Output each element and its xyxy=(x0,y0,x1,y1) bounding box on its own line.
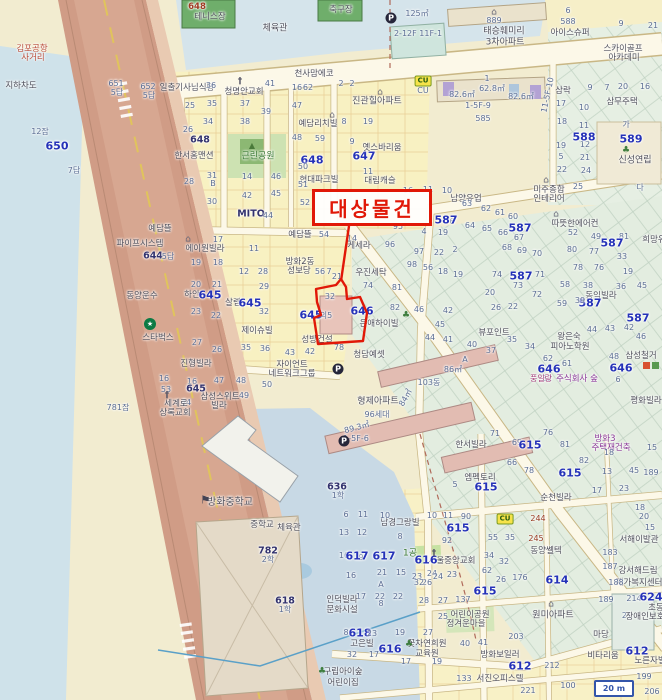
map-label: 18 xyxy=(604,449,614,457)
scale-bar: 20 m xyxy=(594,680,634,697)
map-label: 76 xyxy=(594,264,604,272)
map-label: 617 xyxy=(373,551,396,562)
map-label: 12 xyxy=(239,268,249,276)
map-label: 137 xyxy=(455,596,470,604)
map-label: 16 xyxy=(292,84,302,92)
map-label: 84㎡ xyxy=(398,388,414,408)
map-label: 7답 xyxy=(68,167,80,175)
map-label: 에이원빌라 xyxy=(185,245,224,254)
map-label: 27 xyxy=(423,629,433,637)
map-label: 72 xyxy=(532,291,542,299)
map-label: 587 xyxy=(601,238,624,249)
map-label: MITO xyxy=(237,209,265,219)
map-label: 원미아파트 xyxy=(532,612,573,621)
map-label: 48 xyxy=(236,377,246,385)
map-label: 15 xyxy=(396,569,406,577)
map-label: 82 xyxy=(390,304,400,312)
map-label: 한서홈맨션 xyxy=(174,152,213,161)
map-label: 5 xyxy=(558,153,563,161)
map-label: 52 xyxy=(568,229,578,237)
map-label: 46 xyxy=(271,173,281,181)
bldg-icon: ⌂ xyxy=(329,112,335,121)
map-label: 11 xyxy=(443,512,453,520)
map-label: 62 xyxy=(481,205,491,213)
map-label: 92 xyxy=(442,537,452,545)
map-label: 58 xyxy=(560,281,570,289)
map-label: 27 xyxy=(438,597,448,605)
map-label: 대림캐슬 xyxy=(364,177,395,186)
map-label: 상록교회 xyxy=(159,409,190,418)
map-label: 네트워크그룹 xyxy=(269,370,316,379)
map-label: 56 xyxy=(423,264,433,272)
map-label: 64 xyxy=(465,222,475,230)
map-label: 21 xyxy=(648,22,658,30)
map-label: 8 xyxy=(343,629,348,637)
target-annotation-box: 대상물건 xyxy=(312,189,432,226)
map-label: 12잡 xyxy=(31,128,49,136)
p-icon: P xyxy=(339,436,350,447)
map-label: 77 xyxy=(589,248,599,256)
map-label: 74 xyxy=(492,271,502,279)
map-label: 28 xyxy=(184,178,194,186)
map-label: 615 xyxy=(474,586,497,597)
map-label: B xyxy=(210,180,216,188)
map-label: 뷰포인트 xyxy=(478,329,509,338)
map-label: 10 xyxy=(427,512,437,520)
map-label: 13 xyxy=(602,468,612,476)
map-label: 70 xyxy=(532,250,542,258)
map-label: 38 xyxy=(240,118,250,126)
map-label: 25 xyxy=(573,183,583,191)
map-label: 48 xyxy=(292,134,302,142)
map-label: 189 xyxy=(598,596,613,604)
map-label: 644 xyxy=(143,251,163,261)
map-label: 61 xyxy=(562,360,572,368)
map-label: 32 xyxy=(325,293,335,301)
map-label: 강서해드림 xyxy=(618,567,657,576)
map-label: 10 xyxy=(380,512,390,520)
map-label: 21 xyxy=(580,154,590,162)
map-label: 가 xyxy=(622,121,629,129)
map-label: 42 xyxy=(624,324,634,332)
map-label: 21 xyxy=(332,273,342,281)
map-label: 587 xyxy=(510,271,533,282)
map-label: 희망유 xyxy=(642,236,662,245)
map-label: 38 xyxy=(583,282,593,290)
map-label: 남경그랑빌 xyxy=(380,519,419,528)
map-label: 스타벅스 xyxy=(142,334,173,343)
map-label: 5답 xyxy=(143,92,155,100)
map-label: 40 xyxy=(467,341,477,349)
map-label: 781잡 xyxy=(107,404,130,412)
map-label: A xyxy=(462,356,467,364)
church-icon: † xyxy=(432,550,437,559)
map-label: 5 xyxy=(452,481,457,489)
map-label: 어린이집 xyxy=(327,679,358,688)
map-label: 54 xyxy=(319,231,329,239)
map-label: A xyxy=(378,581,383,589)
map-label: 꽃차연희원 xyxy=(407,640,446,649)
cu-icon: CU xyxy=(497,514,514,525)
map-label: 12 xyxy=(357,529,367,537)
map-label: 서해이발관 xyxy=(619,536,658,545)
map-label: 4 xyxy=(421,228,426,236)
map-label: 26 xyxy=(212,346,222,354)
map-label: 23 xyxy=(191,308,201,316)
map-label: 15 xyxy=(645,524,655,532)
map-label: 17 xyxy=(369,651,379,659)
map-label: 우진세탁 xyxy=(355,269,386,278)
map-label: 245 xyxy=(528,535,543,543)
map-label: 40 xyxy=(460,640,470,648)
map-label: 76 xyxy=(543,429,553,437)
map-label: 9 xyxy=(349,138,354,146)
map-label: 650 xyxy=(46,141,69,152)
map-label: 37 xyxy=(240,100,250,108)
map-label: 648 xyxy=(188,3,206,12)
map-label: 동양쎌텍 xyxy=(530,547,561,556)
map-label: 중학교 xyxy=(250,521,273,530)
map-label: 29 xyxy=(259,283,269,291)
map-label: 6 xyxy=(565,7,570,15)
map-label: 3차아파트 xyxy=(486,39,525,48)
map-label: 다 xyxy=(636,184,643,192)
map-label: 5답 xyxy=(162,253,174,261)
map-label: 86㎡ xyxy=(444,366,462,374)
map-label: 615 xyxy=(519,440,542,451)
map-label: 32 xyxy=(259,308,269,316)
map-label: 62 xyxy=(482,567,492,575)
church-icon: † xyxy=(165,392,170,401)
map-label: 45 xyxy=(629,467,639,475)
map-label: 17 xyxy=(401,658,411,666)
map-label: 36 xyxy=(260,345,270,353)
map-label: 5답 xyxy=(111,89,123,97)
map-label: 26 xyxy=(496,576,506,584)
map-label: 사거리 xyxy=(21,54,44,63)
map-label: 585 xyxy=(475,115,490,123)
map-label: 48 xyxy=(609,353,619,361)
map-label: 183 xyxy=(602,549,617,557)
map-label: 7 xyxy=(326,268,331,276)
tree-icon: ♣ xyxy=(405,641,413,650)
bldg-icon: ⌂ xyxy=(185,236,191,245)
map-label: 52 xyxy=(300,199,310,207)
map-label: 2 xyxy=(452,246,457,254)
map-label: 612 xyxy=(509,661,532,672)
map-label: 6 xyxy=(615,376,620,384)
map-label: 17 xyxy=(592,487,602,495)
map-label: 614 xyxy=(546,575,569,586)
map-label: 71 xyxy=(535,271,545,279)
map-label: 9 xyxy=(587,84,592,92)
map-label: 615 xyxy=(447,523,470,534)
cadastral-map: 체육관648테니스장축구장125㎡2-12F 11F-1889태승훼미리3차아파… xyxy=(0,0,662,700)
map-label: 19 xyxy=(432,658,442,666)
peak-icon: ▲ xyxy=(249,142,255,150)
p-icon: P xyxy=(386,13,397,24)
map-label: 45 xyxy=(435,321,445,329)
map-label: 22 xyxy=(211,312,221,320)
map-label: 왕은숙 xyxy=(557,333,580,342)
map-label: 18 xyxy=(557,118,567,126)
school-icon: ⚑ xyxy=(200,495,210,506)
map-label: 44 xyxy=(263,212,273,220)
map-label: 90 xyxy=(461,513,471,521)
map-label: 방화중학교 xyxy=(207,498,253,508)
map-label: 206 xyxy=(644,688,659,696)
map-label: 11 xyxy=(358,511,368,519)
map-label: 한서빌라 xyxy=(455,441,486,450)
map-label: 순천빌라 xyxy=(540,494,571,503)
map-label: 78 xyxy=(334,344,344,352)
map-label: 축구장 xyxy=(329,6,352,15)
map-label: CU xyxy=(417,87,428,95)
map-label: 11-5F-10 xyxy=(540,77,555,114)
map-label: 19 xyxy=(623,268,633,276)
map-label: 22 xyxy=(508,303,518,311)
map-label: 13 xyxy=(339,529,349,537)
map-label: 문화시설 xyxy=(326,606,357,615)
map-label: 19 xyxy=(556,142,566,150)
map-label: 17 xyxy=(213,236,223,244)
church-icon: † xyxy=(238,78,243,87)
map-label: 근린공원 xyxy=(241,153,274,162)
map-label: 방화보일러 xyxy=(480,651,519,660)
map-label: 39 xyxy=(261,108,271,116)
map-label: 34 xyxy=(203,118,213,126)
map-label: 30 xyxy=(207,198,217,206)
map-label: 24 xyxy=(433,573,443,581)
map-label: 188 xyxy=(608,579,623,587)
map-label: 천사맘에코 xyxy=(294,70,333,79)
map-label: 43 xyxy=(605,325,615,333)
map-label: 27 xyxy=(192,339,202,347)
map-label: 43 xyxy=(285,349,295,357)
map-label: 인덕빌라 xyxy=(326,596,357,605)
map-label: 81 xyxy=(560,441,570,449)
map-label: 45 xyxy=(637,282,647,290)
map-label: 41 xyxy=(265,80,275,88)
map-label: 마당 xyxy=(593,631,609,640)
map-label: 아이스슈퍼 xyxy=(550,29,589,38)
map-label: 78 xyxy=(524,467,534,475)
map-label: 81 xyxy=(392,284,402,292)
map-label: 42 xyxy=(443,307,453,315)
map-label: 78 xyxy=(573,264,583,272)
map-label: 67 xyxy=(514,234,524,242)
map-label: 서진오피스텔 xyxy=(477,675,524,684)
map-label: 617 xyxy=(346,551,369,562)
map-label: 예담뜰 xyxy=(288,231,311,240)
map-label: 1 xyxy=(484,75,489,83)
map-label: 22 xyxy=(434,249,444,257)
map-label: 125㎡ xyxy=(405,10,428,18)
cu-icon: CU xyxy=(415,76,432,87)
map-label: 45 xyxy=(271,190,281,198)
map-label: 파이프시스템 xyxy=(117,240,164,249)
map-label: 2-12F 11F-1 xyxy=(394,30,442,38)
target-annotation-label: 대상물건 xyxy=(329,193,415,222)
map-label: 정겨운마을 xyxy=(446,620,485,629)
map-label: 646 xyxy=(351,306,374,317)
map-label: 성보당 xyxy=(287,267,310,276)
map-label: 97 xyxy=(414,248,424,256)
map-label: 32 xyxy=(414,579,424,587)
bldg-icon: ⌂ xyxy=(548,601,554,610)
map-label: 46 xyxy=(636,333,646,341)
map-labels-layer: 체육관648테니스장축구장125㎡2-12F 11F-1889태승훼미리3차아파… xyxy=(0,0,662,700)
map-label: 동양운수 xyxy=(126,292,157,301)
map-label: 삼성철거 xyxy=(625,352,656,361)
map-label: 59 xyxy=(557,300,567,308)
map-label: 34 xyxy=(484,552,494,560)
map-label: 삼무주택 xyxy=(606,98,637,107)
map-label: 2학 xyxy=(262,556,274,564)
bldg-icon: ⌂ xyxy=(553,211,559,220)
map-label: 189 xyxy=(643,469,658,477)
map-label: 34 xyxy=(525,343,535,351)
map-label: 18 xyxy=(213,259,223,267)
map-label: 36 xyxy=(206,82,216,90)
map-label: 23 xyxy=(619,485,629,493)
map-label: 25 xyxy=(438,613,448,621)
map-label: 16 xyxy=(640,83,650,91)
map-label: 100 xyxy=(560,682,575,690)
map-label: 6 xyxy=(343,511,348,519)
map-label: 646 xyxy=(610,363,633,374)
map-label: 테니스장 xyxy=(194,13,225,22)
map-label: 587 xyxy=(435,215,458,226)
map-label: 20 xyxy=(618,83,628,91)
map-label: 22 xyxy=(393,593,403,601)
map-label: 68 xyxy=(502,244,512,252)
bldg-icon: ⌂ xyxy=(491,9,497,18)
map-label: 37 xyxy=(486,347,496,355)
map-label: 98 xyxy=(407,261,417,269)
map-label: 652 xyxy=(140,83,155,91)
map-label: 20 xyxy=(639,513,649,521)
map-label: 55 xyxy=(488,534,498,542)
map-label: 42 xyxy=(305,348,315,356)
map-label: 태승훼미리 xyxy=(483,28,524,37)
map-label: 옛스바리움 xyxy=(362,144,401,153)
map-label: 73 xyxy=(513,282,523,290)
map-label: 28 xyxy=(258,268,268,276)
map-label: 16 xyxy=(346,572,356,580)
map-label: 35 xyxy=(207,100,217,108)
map-label: 62 xyxy=(543,355,553,363)
map-label: 22 xyxy=(557,166,567,174)
map-label: 빌라 xyxy=(211,402,227,411)
map-label: 제이슈빌 xyxy=(241,327,272,336)
map-label: 66 xyxy=(498,229,508,237)
bldg-icon: ⌂ xyxy=(543,177,549,186)
map-label: 1-5F-9 xyxy=(465,102,491,110)
map-label: 80 xyxy=(567,246,577,254)
map-label: 19 xyxy=(191,259,201,267)
map-label: 28 xyxy=(419,597,429,605)
map-label: 35 xyxy=(241,344,251,352)
bldg-icon: ⌂ xyxy=(377,89,383,98)
map-label: 형제아파트 xyxy=(357,398,398,407)
map-label: 15 xyxy=(647,444,657,452)
map-label: 1학 xyxy=(279,606,291,614)
map-label: 의5 xyxy=(320,312,332,320)
map-label: 25 xyxy=(185,102,195,110)
map-label: 9 xyxy=(618,20,623,28)
map-label: 신성연립 xyxy=(618,157,651,166)
map-label: 32 xyxy=(499,558,509,566)
map-label: 96 xyxy=(385,241,395,249)
map-label: 50 xyxy=(298,163,308,171)
map-label: 44 xyxy=(425,334,435,342)
map-label: 199 xyxy=(636,673,651,681)
map-label: 588 xyxy=(560,18,575,26)
map-label: 46 xyxy=(414,306,424,314)
map-label: 889 xyxy=(486,17,501,25)
map-label: 26 xyxy=(183,126,193,134)
map-label: 59 xyxy=(315,135,325,143)
map-label: 풍일랑 xyxy=(530,375,552,383)
map-label: 645 xyxy=(199,290,222,301)
map-label: 18 xyxy=(438,268,448,276)
map-label: 18 xyxy=(635,504,645,512)
map-label: 50 xyxy=(262,381,272,389)
map-label: 체육관 xyxy=(277,524,300,533)
map-label: 청명안교회 xyxy=(224,88,263,97)
map-label: 615 xyxy=(559,468,582,479)
map-label: 41 xyxy=(478,639,488,647)
map-label: 인테리어 xyxy=(533,195,564,204)
map-label: 19 xyxy=(438,229,448,237)
map-label: 노른자빌 xyxy=(634,657,662,666)
map-label: 587 xyxy=(627,313,650,324)
map-label: 624 xyxy=(640,592,662,603)
map-label: 진형빌라 xyxy=(180,360,211,369)
map-label: 41 xyxy=(443,336,453,344)
map-label: 14 xyxy=(242,173,252,181)
map-label: 44 xyxy=(587,326,597,334)
map-label: 하안 xyxy=(184,291,200,300)
map-label: 성방건설 xyxy=(301,336,332,345)
map-label: 63 xyxy=(462,200,472,208)
map-label: 187 xyxy=(602,563,617,571)
map-label: 10 xyxy=(442,187,452,195)
map-label: 1학 xyxy=(332,492,344,500)
map-label: 청담예셋 xyxy=(353,351,384,360)
map-label: 따뜻한에어컨 xyxy=(552,220,599,229)
map-label: 8 xyxy=(378,600,383,608)
map-label: 587 xyxy=(509,223,532,234)
map-label: 아카데미 xyxy=(608,54,639,63)
map-label: 20 xyxy=(485,289,495,297)
map-label: 61 xyxy=(495,209,505,217)
map-label: 212 xyxy=(544,662,559,670)
map-label: 23 xyxy=(447,571,457,579)
map-label: 62.8㎡ xyxy=(479,85,505,93)
map-label: 71 xyxy=(490,430,500,438)
map-label: 47 xyxy=(214,377,224,385)
tree-icon: ♣ xyxy=(622,147,630,156)
map-label: 2 xyxy=(349,80,354,88)
map-label: 82.6㎡ xyxy=(449,91,475,99)
map-label: 49 xyxy=(239,392,249,400)
map-label: 7 xyxy=(604,84,609,92)
map-label: 203 xyxy=(508,633,523,641)
map-label: 615 xyxy=(475,482,498,493)
map-label: 47 xyxy=(292,102,302,110)
